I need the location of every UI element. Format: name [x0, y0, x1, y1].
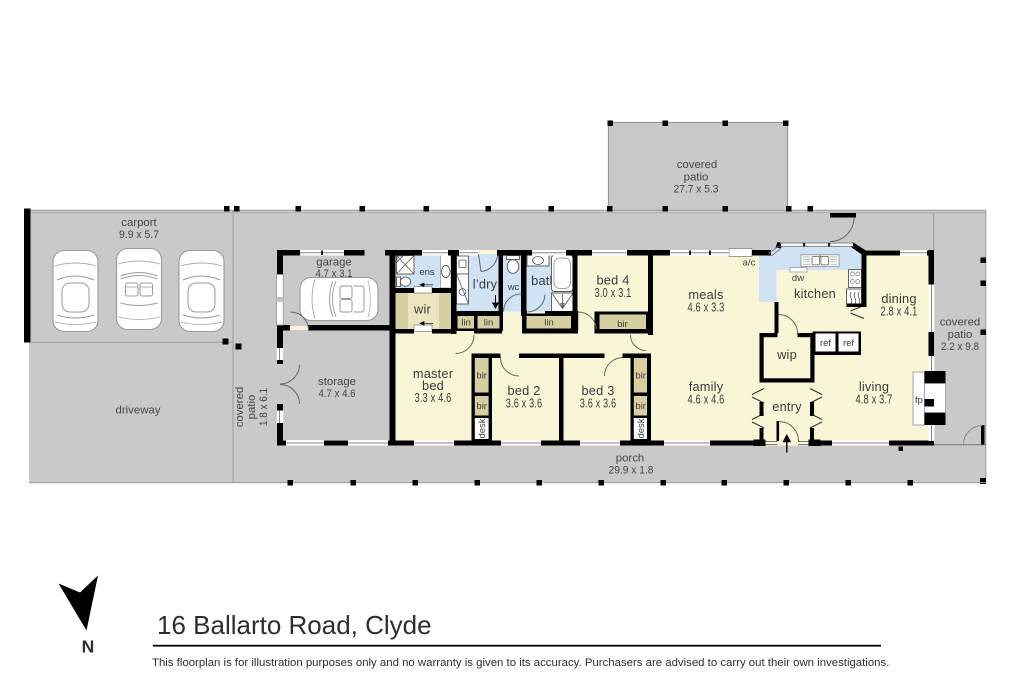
svg-text:entry: entry: [772, 399, 802, 414]
svg-text:27.7 x 5.3: 27.7 x 5.3: [674, 184, 719, 196]
svg-text:2.2 x 9.8: 2.2 x 9.8: [941, 341, 979, 353]
svg-text:l’dry: l’dry: [473, 277, 498, 292]
svg-text:ref: ref: [843, 338, 854, 349]
svg-text:wip: wip: [776, 347, 797, 362]
svg-text:bir: bir: [476, 401, 487, 412]
svg-text:This floorplan is for illustra: This floorplan is for illustration purpo…: [152, 657, 889, 669]
svg-text:3.0 x 3.1: 3.0 x 3.1: [595, 285, 632, 300]
svg-text:N: N: [82, 637, 95, 657]
svg-text:bir: bir: [635, 371, 646, 382]
svg-text:fp: fp: [915, 395, 923, 406]
svg-text:4.8 x 3.7: 4.8 x 3.7: [856, 392, 893, 407]
svg-text:lin: lin: [484, 318, 494, 329]
svg-text:1.8 x 6.1: 1.8 x 6.1: [258, 388, 270, 426]
svg-text:porch: porch: [616, 453, 645, 465]
svg-text:ens: ens: [419, 267, 435, 278]
svg-text:3.6 x 3.6: 3.6 x 3.6: [506, 396, 543, 411]
svg-text:kitchen: kitchen: [794, 286, 836, 301]
svg-text:patio: patio: [684, 172, 709, 184]
svg-text:16 Ballarto Road, Clyde: 16 Ballarto Road, Clyde: [157, 610, 432, 640]
svg-text:garage: garage: [316, 257, 351, 269]
svg-text:driveway: driveway: [116, 405, 161, 417]
svg-text:29.9 x 1.8: 29.9 x 1.8: [609, 465, 654, 477]
svg-text:wc: wc: [507, 282, 520, 293]
svg-text:covered: covered: [677, 159, 718, 171]
svg-text:patio: patio: [246, 395, 258, 420]
svg-text:lin: lin: [544, 318, 554, 329]
svg-text:4.6 x 3.3: 4.6 x 3.3: [688, 300, 725, 315]
svg-text:bir: bir: [617, 319, 628, 330]
svg-text:patio: patio: [948, 329, 973, 341]
svg-text:2.8 x 4.1: 2.8 x 4.1: [881, 304, 918, 319]
svg-text:bir: bir: [635, 401, 646, 412]
svg-text:covered: covered: [940, 317, 981, 329]
svg-text:4.7 x 4.6: 4.7 x 4.6: [319, 388, 356, 400]
svg-text:9.9 x 5.7: 9.9 x 5.7: [119, 229, 159, 241]
svg-text:ref: ref: [820, 338, 831, 349]
svg-text:desk: desk: [636, 418, 647, 438]
svg-text:covered: covered: [234, 387, 246, 428]
svg-text:dw: dw: [792, 273, 804, 284]
svg-text:carport: carport: [121, 217, 157, 229]
svg-text:lin: lin: [461, 318, 471, 329]
svg-text:3.6 x 3.6: 3.6 x 3.6: [580, 396, 617, 411]
svg-text:a/c: a/c: [743, 258, 756, 269]
svg-text:3.3 x 4.6: 3.3 x 4.6: [415, 390, 452, 405]
svg-text:wir: wir: [413, 302, 431, 317]
svg-text:4.6 x 4.6: 4.6 x 4.6: [688, 392, 725, 407]
svg-text:storage: storage: [318, 376, 356, 388]
svg-text:desk: desk: [477, 418, 488, 438]
svg-text:bir: bir: [476, 371, 487, 382]
